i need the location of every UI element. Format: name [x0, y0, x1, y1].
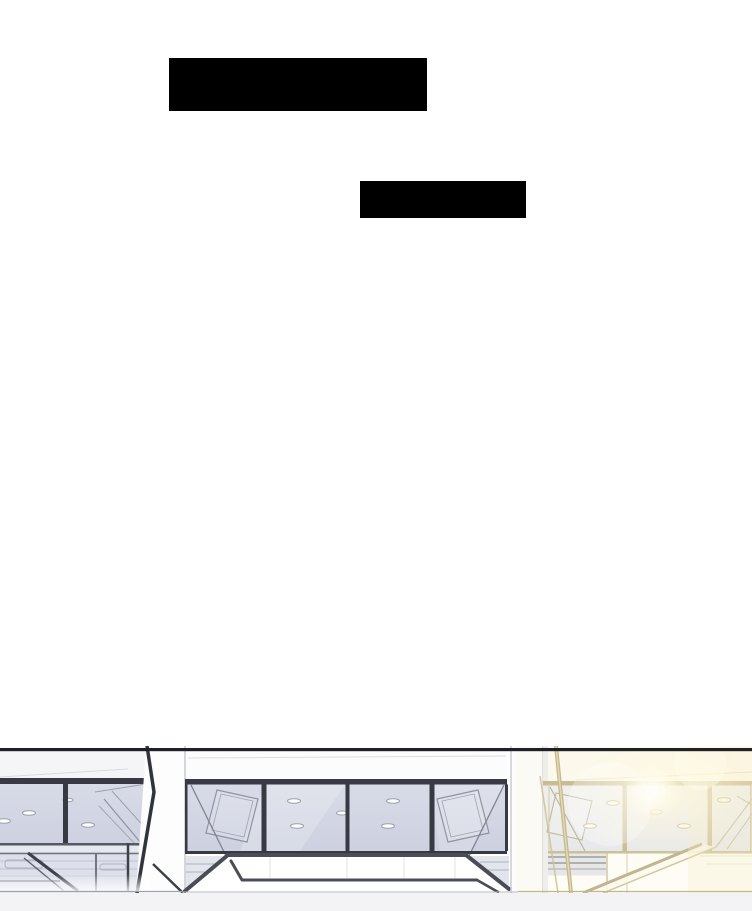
- interior-scene-art: [0, 746, 752, 911]
- interior-scene-panel: [0, 746, 752, 911]
- comic-page: [0, 0, 752, 911]
- panel-top-border: [0, 748, 752, 751]
- page-footer-strip: [0, 893, 752, 911]
- sunlight-flare: [516, 746, 752, 893]
- glass-panels-left: [0, 778, 147, 846]
- redaction-bar-2: [360, 181, 526, 218]
- glass-panels-center: [185, 779, 508, 856]
- redaction-bar-1: [169, 58, 427, 111]
